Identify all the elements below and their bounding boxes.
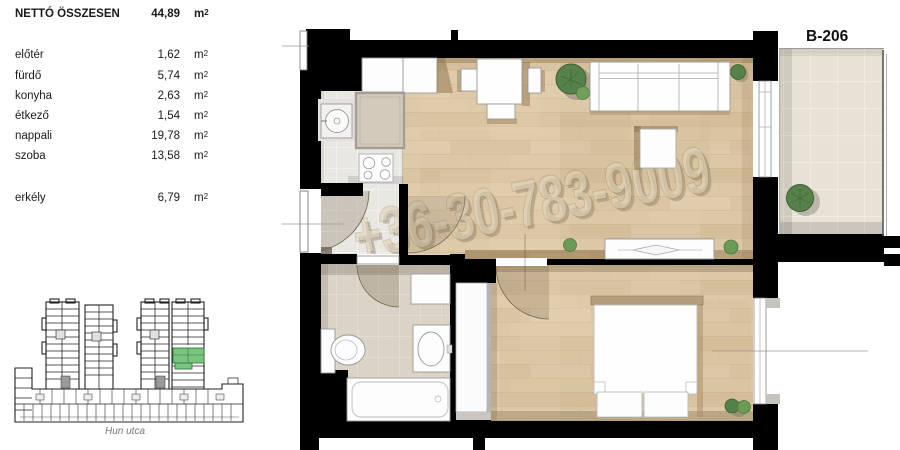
svg-text:B-206: B-206	[806, 28, 849, 45]
